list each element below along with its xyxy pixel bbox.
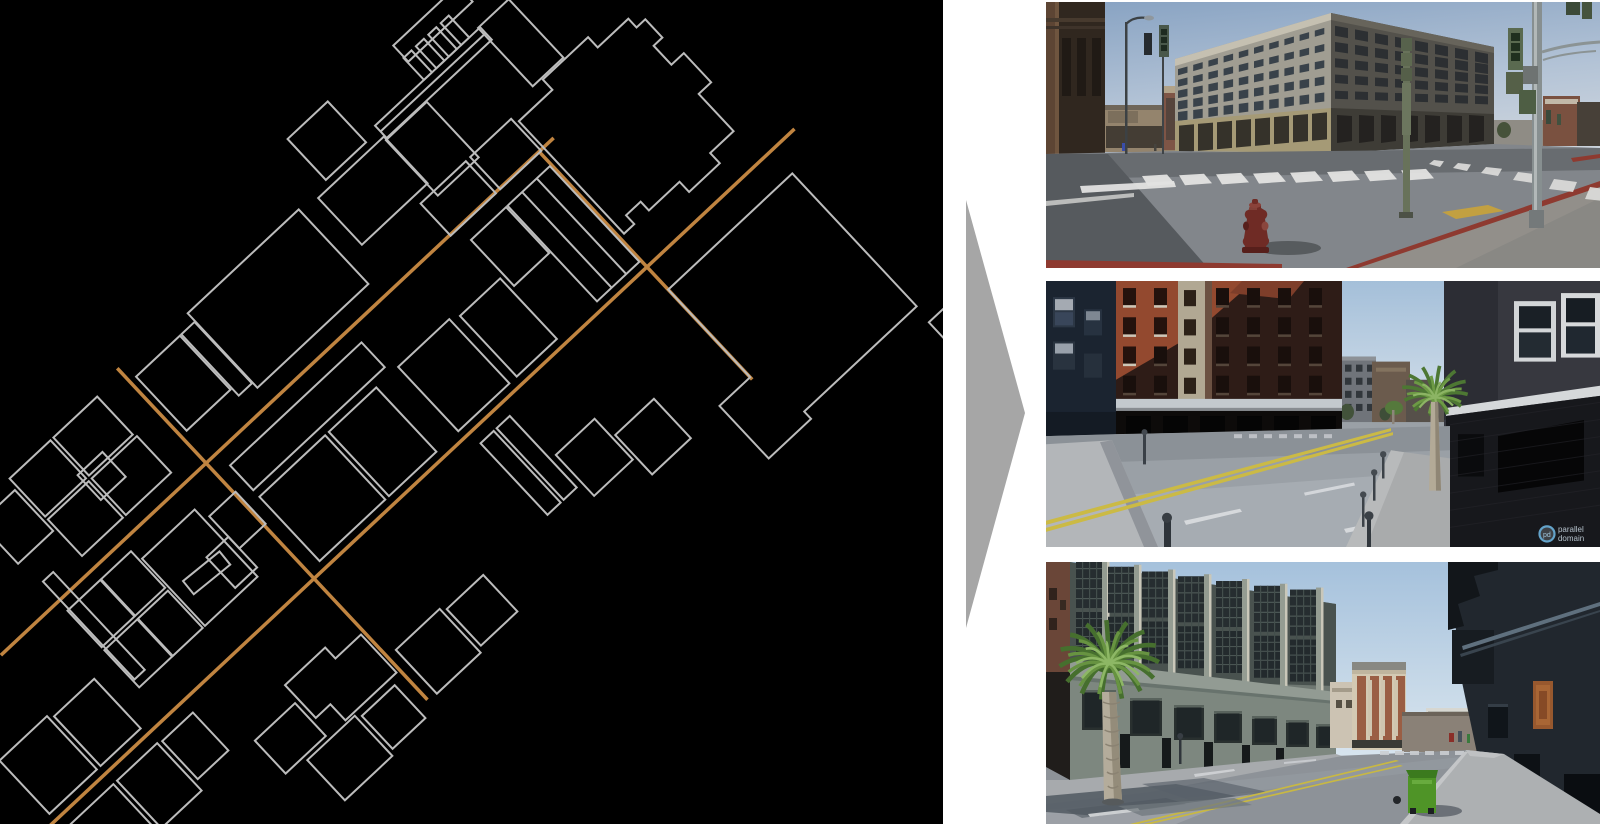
svg-text:domain: domain [1558,534,1584,543]
svg-text:parallel: parallel [1558,525,1584,534]
svg-text:pd: pd [1543,532,1551,539]
